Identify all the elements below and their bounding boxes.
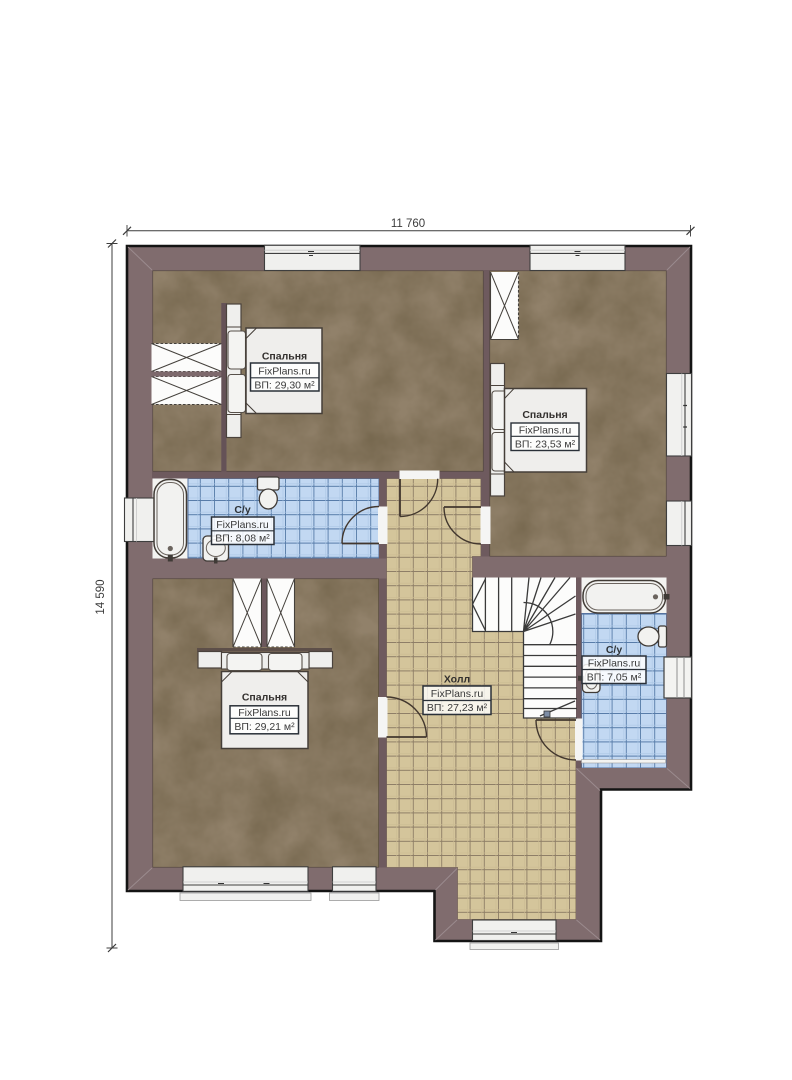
svg-text:Спальня: Спальня	[262, 350, 307, 362]
svg-text:ВП: 23,53 м²: ВП: 23,53 м²	[515, 438, 576, 450]
svg-text:FixPlans.ru: FixPlans.ru	[519, 425, 572, 437]
svg-text:ВП: 8,08 м²: ВП: 8,08 м²	[215, 533, 270, 545]
svg-text:FixPlans.ru: FixPlans.ru	[216, 519, 269, 531]
svg-text:FixPlans.ru: FixPlans.ru	[431, 688, 484, 700]
svg-text:ВП: 27,23 м²: ВП: 27,23 м²	[427, 702, 488, 714]
svg-text:ВП: 7,05 м²: ВП: 7,05 м²	[587, 671, 642, 683]
svg-text:Спальня: Спальня	[242, 692, 287, 704]
svg-text:FixPlans.ru: FixPlans.ru	[588, 658, 641, 670]
svg-text:14 590: 14 590	[95, 579, 107, 614]
svg-text:ВП: 29,30 м²: ВП: 29,30 м²	[254, 379, 315, 391]
svg-text:ВП: 29,21 м²: ВП: 29,21 м²	[234, 721, 295, 733]
svg-text:FixPlans.ru: FixPlans.ru	[258, 366, 311, 378]
svg-text:11 760: 11 760	[391, 218, 425, 230]
svg-text:С/у: С/у	[606, 644, 623, 656]
svg-text:С/у: С/у	[234, 504, 251, 516]
svg-text:FixPlans.ru: FixPlans.ru	[238, 707, 291, 719]
svg-text:Спальня: Спальня	[522, 409, 567, 421]
svg-text:Холл: Холл	[444, 674, 470, 686]
